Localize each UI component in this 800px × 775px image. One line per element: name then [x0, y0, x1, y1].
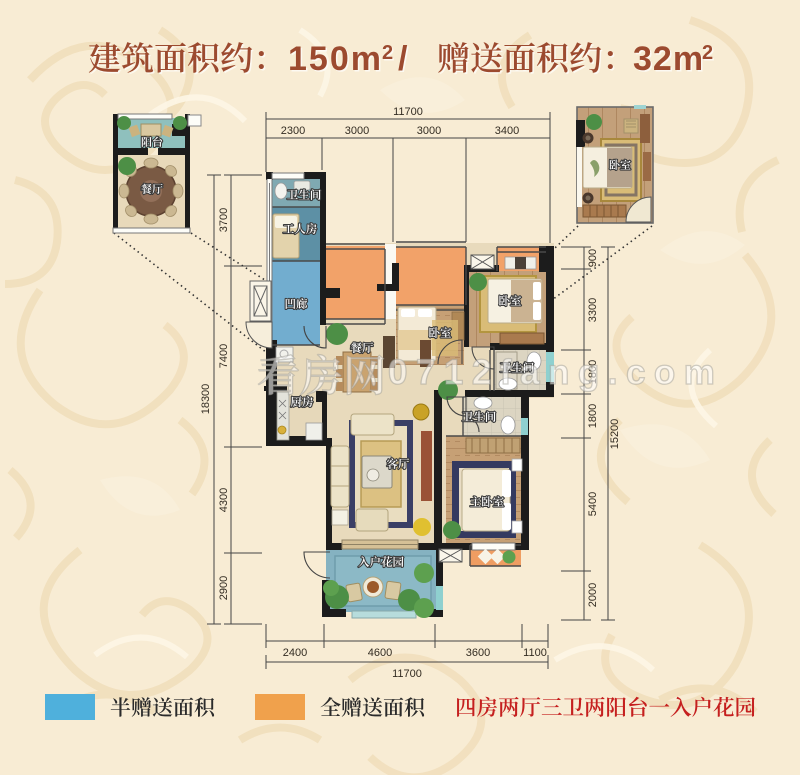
- svg-text:18300: 18300: [200, 384, 212, 415]
- svg-text:0712fang.com: 0712fang.com: [388, 353, 723, 392]
- svg-text:1800: 1800: [587, 404, 599, 428]
- svg-text:4300: 4300: [218, 488, 230, 512]
- svg-text:2: 2: [702, 42, 713, 64]
- svg-text:15200: 15200: [609, 419, 621, 450]
- svg-text:150m: 150m: [288, 40, 383, 78]
- svg-text:2300: 2300: [281, 125, 305, 137]
- svg-text:2: 2: [382, 42, 393, 64]
- svg-text:3000: 3000: [345, 125, 369, 137]
- svg-text:3700: 3700: [218, 208, 230, 232]
- svg-text:2000: 2000: [587, 583, 599, 607]
- svg-text:2900: 2900: [218, 576, 230, 600]
- svg-text:1100: 1100: [523, 647, 547, 659]
- svg-text:2400: 2400: [283, 647, 307, 659]
- svg-text:11700: 11700: [393, 106, 423, 118]
- svg-text:3600: 3600: [466, 647, 490, 659]
- svg-text:/: /: [398, 40, 408, 78]
- svg-text:3300: 3300: [587, 298, 599, 322]
- svg-text:7400: 7400: [218, 344, 230, 368]
- svg-text:11700: 11700: [392, 668, 422, 680]
- svg-text:32m: 32m: [633, 40, 704, 78]
- svg-text:900: 900: [587, 249, 599, 267]
- svg-text:4600: 4600: [368, 647, 392, 659]
- svg-text:5400: 5400: [587, 492, 599, 516]
- svg-text:3400: 3400: [495, 125, 519, 137]
- svg-text:3000: 3000: [417, 125, 441, 137]
